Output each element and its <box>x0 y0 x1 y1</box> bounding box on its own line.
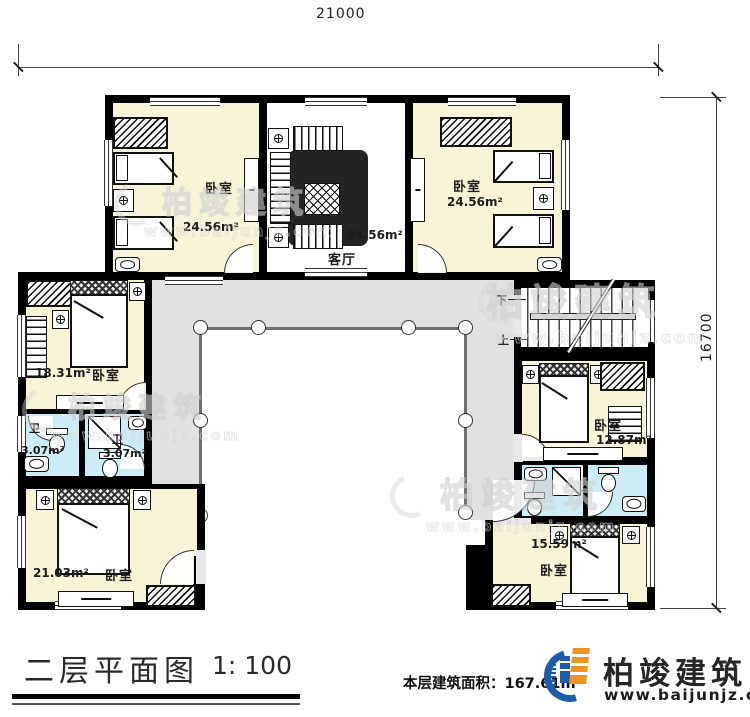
cabinet-icon <box>244 158 259 222</box>
window <box>150 97 220 106</box>
logo-dots-icon <box>550 664 556 686</box>
window <box>17 516 26 568</box>
window <box>448 97 516 106</box>
lamp-icon <box>133 287 142 296</box>
wardrobe-icon <box>146 585 196 607</box>
lamp-icon <box>539 194 548 203</box>
wardrobe-icon <box>600 362 645 391</box>
plan-scale: 1: 100 <box>212 651 292 680</box>
stair-up-label: 上 <box>498 332 509 348</box>
room-area: 15.59m² <box>531 537 587 551</box>
lamp-icon <box>627 531 636 540</box>
room-label: 卧室 <box>105 565 133 584</box>
logo-building-icon <box>560 656 570 683</box>
stair-opening <box>513 295 522 337</box>
nightstand-icon <box>36 490 54 510</box>
top-dimension-value: 21000 <box>316 6 366 22</box>
washbasin-icon <box>115 257 140 272</box>
room-label: 卧室 <box>540 560 568 579</box>
corridor-north <box>152 280 514 327</box>
window <box>104 140 113 206</box>
room-area: 3.07m² <box>21 444 64 457</box>
title-rule <box>12 703 300 705</box>
right-dimension-line <box>716 97 717 609</box>
room-label: 卫 <box>112 431 124 447</box>
floor-plan-sheet: 21000 16700 <box>0 0 750 717</box>
lamp-icon <box>56 315 65 324</box>
railing-column <box>193 320 208 335</box>
coffee-table-icon <box>304 183 340 215</box>
plant-icon <box>274 134 283 143</box>
railing-column <box>401 320 416 335</box>
toilet-icon <box>598 467 619 492</box>
plant-icon <box>274 233 283 242</box>
room-label: 卧室 <box>594 415 622 434</box>
door-opening <box>196 550 206 584</box>
wardrobe-icon <box>440 117 512 147</box>
window <box>646 527 655 587</box>
nightstand-icon <box>533 187 554 210</box>
nightstand-icon <box>113 189 134 212</box>
nightstand-icon <box>522 365 539 384</box>
stair-landing <box>639 288 648 347</box>
room-area: 24.56m² <box>447 195 503 209</box>
nightstand-icon <box>133 490 151 510</box>
dresser-icon <box>543 447 623 461</box>
stair-down-arrow <box>508 299 526 300</box>
dresser-icon <box>56 395 124 410</box>
window <box>646 378 655 438</box>
railing-column <box>458 320 473 335</box>
stair-down-label: 下 <box>496 292 507 308</box>
window <box>165 276 223 285</box>
window <box>305 97 367 106</box>
room-label: 卫 <box>29 420 41 436</box>
sofa-icon <box>270 152 291 224</box>
room-area: 21.03m² <box>33 566 89 580</box>
lamp-icon <box>138 496 147 505</box>
nightstand-icon <box>622 526 640 544</box>
courtyard-void <box>200 327 466 610</box>
wardrobe-icon <box>491 584 531 607</box>
nightstand-icon <box>129 282 146 301</box>
room-area: 12.87m² <box>596 433 652 447</box>
dimension-extension-line <box>18 44 19 76</box>
bath-divider-wall <box>583 465 588 520</box>
room-label: 卧室 <box>205 178 233 197</box>
wall-stub <box>466 545 493 610</box>
dimension-extension-line <box>658 44 659 76</box>
stair-up-arrow <box>510 339 528 340</box>
sink-icon <box>24 456 49 472</box>
sliding-door-living <box>305 268 367 277</box>
railing-top <box>200 327 466 330</box>
washbasin-icon <box>537 257 562 272</box>
room-label: 卧室 <box>453 176 481 195</box>
sink-icon <box>622 496 646 512</box>
shower-icon <box>552 467 581 496</box>
bed-pillows-icon <box>70 280 128 295</box>
title-rule <box>12 694 300 699</box>
side-table-icon <box>268 128 289 149</box>
double-bed-icon <box>70 294 128 368</box>
room-area: 3.07m² <box>103 447 146 460</box>
pillow-icon <box>539 217 551 244</box>
lamp-icon <box>41 496 50 505</box>
toilet-icon <box>524 492 545 516</box>
company-logo: 柏竣建筑 www.baijunjz.com <box>540 640 750 714</box>
bed-pillows-icon <box>57 488 130 504</box>
plan-title: 二层平面图 <box>24 646 199 690</box>
room-label: 客厅 <box>328 249 356 268</box>
window <box>561 140 570 210</box>
logo-website: www.baijunjz.com <box>604 686 750 704</box>
wardrobe-icon <box>113 117 168 149</box>
lamp-icon <box>119 196 128 205</box>
pillow-icon <box>539 153 551 179</box>
side-table-icon <box>268 227 289 248</box>
railing-column <box>251 320 266 335</box>
railing-column <box>193 413 208 428</box>
right-dimension-value: 16700 <box>699 312 715 362</box>
sofa-icon <box>293 126 343 151</box>
dresser-icon <box>58 591 134 607</box>
pillow-icon <box>116 219 128 246</box>
stair-handrail <box>530 313 636 320</box>
room-area: 24.56m² <box>183 220 239 234</box>
room-label: 卧室 <box>92 365 120 384</box>
top-dimension-line <box>18 67 659 68</box>
room-area: 24.56m² <box>347 228 403 242</box>
dresser-icon <box>562 593 628 607</box>
cabinet-icon <box>410 158 425 222</box>
sofa-icon <box>293 224 343 249</box>
sink-icon <box>524 467 547 481</box>
sink-icon <box>128 416 147 430</box>
pillow-icon <box>116 155 128 181</box>
window <box>17 315 26 377</box>
lamp-icon <box>526 370 535 379</box>
room-area: 18.31m² <box>35 366 91 380</box>
nightstand-icon <box>52 310 69 329</box>
railing-column <box>458 413 473 428</box>
railing-column <box>458 505 473 520</box>
